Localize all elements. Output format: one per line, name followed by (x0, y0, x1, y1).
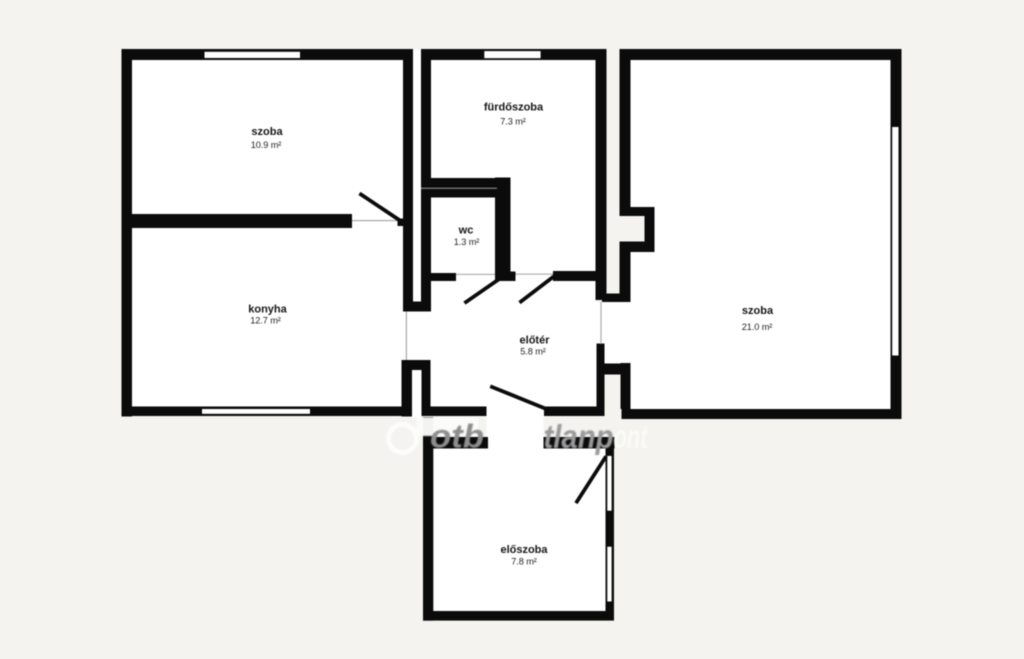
svg-text:előtér: előtér (520, 335, 551, 347)
svg-text:otb: otb (430, 418, 484, 455)
svg-text:fürdőszoba: fürdőszoba (484, 102, 544, 114)
svg-text:12.7 m²: 12.7 m² (250, 316, 280, 326)
svg-text:ont: ont (614, 418, 649, 455)
svg-text:7.3 m²: 7.3 m² (500, 117, 525, 127)
svg-text:szoba: szoba (251, 126, 283, 138)
svg-text:szoba: szoba (742, 305, 774, 317)
svg-text:5.8 m²: 5.8 m² (520, 347, 545, 357)
svg-text:előszoba: előszoba (500, 544, 548, 556)
svg-text:7.8 m²: 7.8 m² (511, 557, 536, 567)
svg-text:wc: wc (458, 225, 474, 237)
svg-text:21.0 m²: 21.0 m² (742, 322, 772, 332)
svg-text:10.9 m²: 10.9 m² (251, 140, 281, 150)
svg-text:konyha: konyha (248, 304, 287, 316)
svg-text:tlanp: tlanp (544, 418, 614, 455)
svg-text:1.3 m²: 1.3 m² (454, 237, 479, 247)
